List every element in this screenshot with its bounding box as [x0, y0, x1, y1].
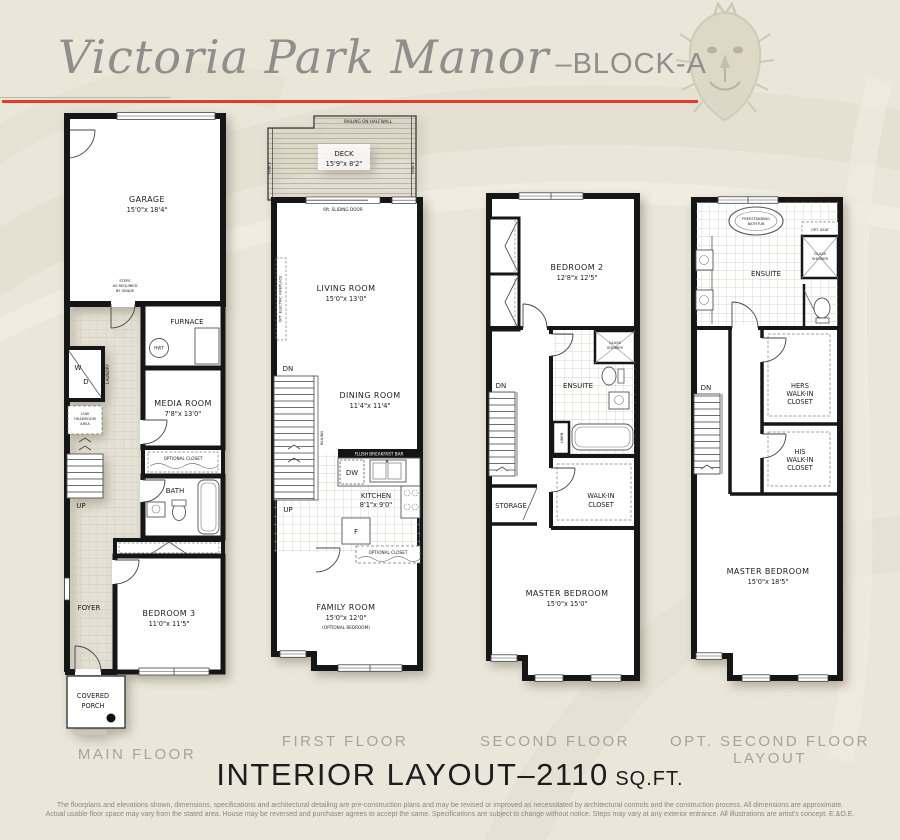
sqft-text: SQ.FT.	[609, 768, 684, 790]
bedroom3-dims: 11'0"x 11'5"	[149, 620, 190, 628]
fridge-label: F	[354, 528, 358, 536]
railing-label: RAILING	[320, 431, 324, 446]
kitchen-dims: 8'1"x 9'0"	[360, 501, 392, 509]
glass-shower-label-1: GLASS	[609, 341, 622, 345]
dw-label: DW	[346, 469, 358, 477]
glass-shower-label-1: GLASS	[814, 252, 827, 256]
left-bottom-window	[280, 651, 306, 658]
foyer-label: FOYER	[78, 604, 101, 612]
glass-shower: GLASS SHOWER	[802, 236, 838, 278]
gray-divider	[0, 97, 170, 98]
laundry-closet: W D LAUNDRY	[67, 348, 110, 400]
kitchen-sink	[370, 460, 406, 482]
bath-sink	[147, 502, 165, 517]
steps-note-3: BY GRADE	[116, 289, 135, 293]
bedroom2-closets	[489, 218, 519, 330]
bedroom3-window	[139, 668, 209, 675]
main-floor-plan: GARAGE 15'0"x 18'4" STEPS AS REQUIRED BY…	[55, 108, 235, 743]
bedroom3-room: BEDROOM 3 11'0"x 11'5"	[112, 556, 223, 675]
main-bathroom: BATH	[140, 476, 223, 538]
dining-room-dims: 11'4"x 11'4"	[350, 402, 391, 410]
interior-layout-text: INTERIOR LAYOUT–2110	[216, 757, 608, 792]
bath-label: BATH	[166, 487, 185, 495]
furnace-label: FURNACE	[170, 318, 203, 326]
interior-layout-title: INTERIOR LAYOUT–2110 SQ.FT.	[0, 757, 900, 793]
porch-step	[75, 730, 107, 735]
tub-label-2: BATHTUB	[748, 222, 765, 226]
left-bottom-window	[491, 655, 517, 662]
svg-text:HEADROOM: HEADROOM	[74, 417, 95, 421]
stair-railing	[314, 376, 318, 500]
hers-label-3: CLOSET	[787, 398, 814, 406]
storage-label: STORAGE	[495, 502, 526, 510]
sliding-door-label: 6ft. SLIDING DOOR	[323, 207, 363, 212]
bottom-window-1	[742, 675, 770, 682]
dn-label: DN	[283, 365, 294, 373]
second-floor-plan: BEDROOM 2 12'8"x 12'5" GLASS SHOWER ENSU…	[479, 190, 647, 697]
living-room-dims: 15'0"x 13'0"	[326, 295, 367, 303]
ensuite-toilet	[602, 367, 624, 385]
opt-second-floor-plan: FREESTANDING BATHTUB OPT. SEAT GLASS SHO…	[684, 194, 848, 697]
up-label: UP	[283, 506, 292, 514]
page-header: Victoria Park Manor–BLOCK-A	[58, 30, 707, 84]
family-room-note: (OPTIONAL BEDROOM)	[322, 625, 370, 630]
deck-label: DECK	[334, 150, 354, 158]
walkin-label-1: WALK-IN	[587, 492, 614, 500]
tub-label-1: FREESTANDING	[742, 217, 770, 221]
svg-text:AREA: AREA	[80, 422, 90, 426]
media-room: MEDIA ROOM 7'8"x 13'0"	[140, 368, 223, 448]
stairs-down: DN RAILING UP	[274, 365, 324, 514]
garage-room: GARAGE 15'0"x 18'4" STEPS AS REQUIRED BY…	[64, 113, 223, 305]
bottom-window-2	[591, 675, 621, 682]
optional-closet-label: OPTIONAL CLOSET	[164, 456, 203, 461]
his-label-1: HIS	[794, 448, 805, 456]
deck: RAILING ON HALFWALL DECK 15'9"x 8'2" FEN…	[268, 116, 416, 200]
bedroom2-dims: 12'8"x 12'5"	[557, 274, 598, 282]
breakfast-bar: FLUSH BREAKFAST BAR DW	[338, 449, 420, 486]
caption-first-floor: FIRST FLOOR	[253, 733, 437, 750]
hallway-tile	[67, 304, 143, 566]
glass-shower-label-2: SHOWER	[812, 257, 829, 261]
glass-shower-label-2: SHOWER	[607, 346, 624, 350]
fence-label-right: FENCE	[411, 161, 415, 174]
his-label-2: WALK-IN	[786, 456, 813, 464]
top-right-window	[392, 197, 416, 204]
glass-shower: GLASS SHOWER	[595, 331, 635, 363]
kitchen-label: KITCHEN	[361, 492, 391, 500]
family-room-label: FAMILY ROOM	[317, 603, 376, 612]
breakfast-bar-label: FLUSH BREAKFAST BAR	[355, 451, 404, 456]
red-divider	[2, 100, 698, 103]
bottom-window-2	[798, 675, 828, 682]
stairs-down: DN	[694, 384, 722, 474]
living-room-label: LIVING ROOM	[317, 284, 376, 293]
left-bottom-window	[696, 653, 722, 660]
dining-room-label: DINING ROOM	[339, 391, 400, 400]
porch-label-1: COVERED	[77, 692, 109, 700]
steps-note-2: AS REQUIRED	[113, 284, 138, 288]
caption-opt-line1: OPT. SECOND FLOOR	[660, 733, 880, 750]
stove	[401, 486, 420, 518]
dn-label: DN	[496, 382, 507, 390]
disclaimer-line-2: Actual usable floor space may vary from …	[10, 810, 890, 819]
optional-seat: OPT. SEAT	[802, 222, 838, 236]
deck-dims: 15'9"x 8'2"	[326, 160, 363, 168]
first-floor-plan: RAILING ON HALFWALL DECK 15'9"x 8'2" FEN…	[258, 108, 442, 683]
media-label: MEDIA ROOM	[154, 399, 212, 408]
master-label: MASTER BEDROOM	[727, 567, 810, 576]
hwt-label: HWT	[154, 346, 164, 351]
top-window	[519, 193, 583, 200]
master-dims: 15'0"x 15'0"	[547, 600, 588, 608]
steps-note-1: STEPS	[119, 279, 131, 283]
opt-seat-label: OPT. SEAT	[811, 228, 830, 232]
optional-closet-label: OPTIONAL CLOSET	[369, 550, 408, 555]
top-window	[718, 197, 778, 204]
block-label: –BLOCK-A	[555, 48, 706, 80]
stairs-down: DN	[489, 382, 517, 476]
hers-label-2: WALK-IN	[786, 390, 813, 398]
linen-label: LINEN	[560, 432, 564, 443]
foyer-window	[65, 578, 70, 600]
main-optional-closet: OPTIONAL CLOSET	[143, 448, 223, 476]
bottom-window-1	[535, 675, 563, 682]
his-label-3: CLOSET	[787, 464, 814, 472]
furnace-room: FURNACE HWT	[143, 304, 223, 368]
bedroom2-label: BEDROOM 2	[551, 263, 604, 272]
ensuite-tub	[572, 424, 633, 450]
porch-label-2: PORCH	[82, 702, 105, 710]
laundry-label: LAUNDRY	[105, 364, 110, 384]
ensuite-label: ENSUITE	[751, 270, 781, 278]
covered-porch: COVERED PORCH	[67, 676, 125, 735]
bottom-window	[338, 665, 402, 672]
fence-label-left: FENCE	[268, 161, 272, 174]
freestanding-bathtub: FREESTANDING BATHTUB	[729, 207, 783, 235]
media-dims: 7'8"x 13'0"	[165, 410, 202, 418]
up-label: UP	[76, 502, 85, 510]
railing-halfwall-label: RAILING ON HALFWALL	[344, 119, 393, 124]
hers-label-1: HERS	[791, 382, 809, 390]
dn-label: DN	[701, 384, 712, 392]
brochure-page: { "header": { "title": "Victoria Park Ma…	[0, 0, 900, 840]
garage-label: GARAGE	[129, 195, 165, 204]
linen-closet: LINEN	[553, 422, 569, 454]
porch-column	[107, 714, 116, 723]
bedroom3-label: BEDROOM 3	[143, 609, 196, 618]
fireplace-label: OPT. ELECTRIC FIREPLACE	[279, 275, 283, 323]
walkin-label-2: CLOSET	[588, 501, 615, 509]
svg-text:LOW: LOW	[81, 412, 90, 416]
dryer-label: D	[83, 378, 88, 386]
master-label: MASTER BEDROOM	[526, 589, 609, 598]
fridge: F	[342, 518, 370, 544]
family-room-dims: 15'0"x 12'0"	[326, 614, 367, 622]
garage-dims: 15'0"x 18'4"	[127, 206, 168, 214]
foyer-tile	[67, 566, 115, 670]
ensuite-sink	[609, 392, 629, 409]
development-title: Victoria Park Manor	[58, 30, 549, 84]
disclaimer-line-1: The floorplans and elevations shown, dim…	[10, 801, 890, 810]
first-optional-closet: OPTIONAL CLOSET	[356, 546, 420, 563]
caption-second-floor: SECOND FLOOR	[463, 733, 647, 750]
ensuite-label: ENSUITE	[563, 382, 593, 390]
master-dims: 15'0"x 18'5"	[748, 578, 789, 586]
washer-label: W	[75, 364, 82, 372]
